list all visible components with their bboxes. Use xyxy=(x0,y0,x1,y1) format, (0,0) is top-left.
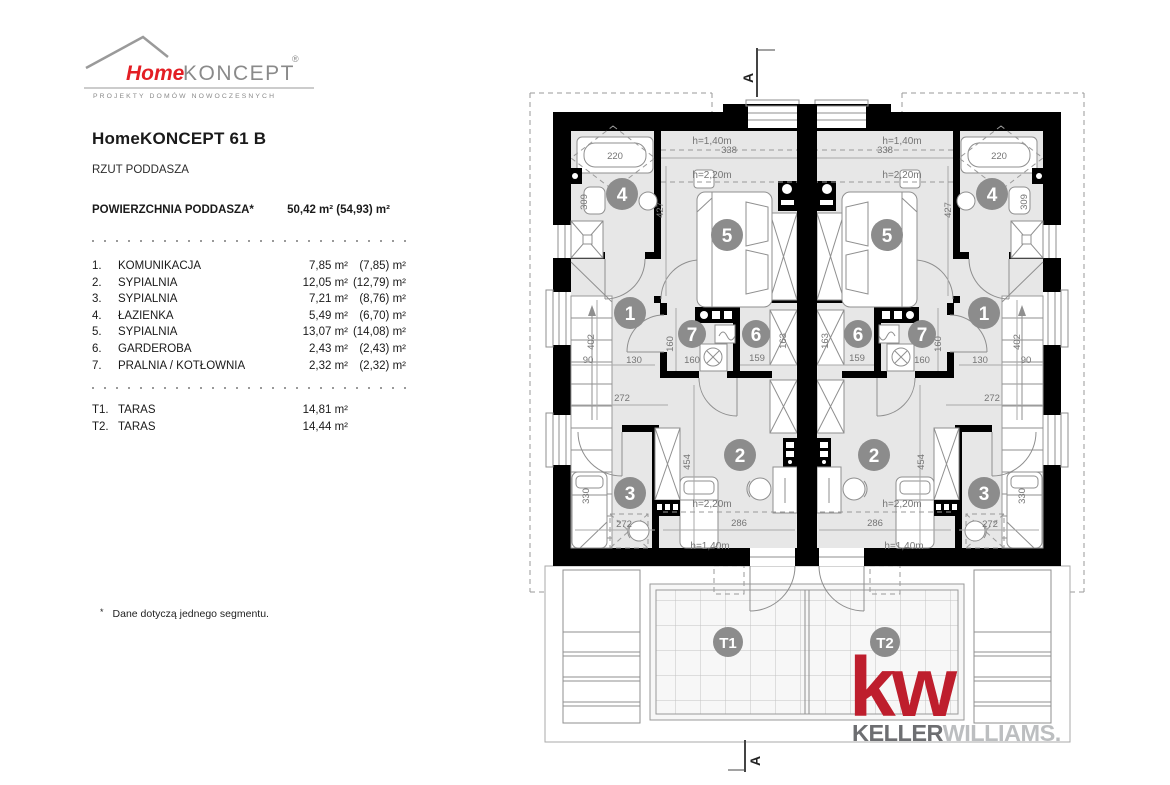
logo-koncept-text: KONCEPT xyxy=(183,62,295,85)
footnote-asterisk: * xyxy=(100,607,104,617)
terrace-area xyxy=(545,566,1070,742)
svg-text:272: 272 xyxy=(984,393,1000,404)
svg-text:1: 1 xyxy=(979,304,990,325)
room-row: 2.SYPIALNIA12,05 m²(12,79) m² xyxy=(92,275,406,292)
svg-text:286: 286 xyxy=(867,518,883,529)
svg-text:309: 309 xyxy=(1019,194,1030,210)
svg-text:A: A xyxy=(747,756,763,766)
svg-text:130: 130 xyxy=(626,355,642,366)
section-marker-top: A xyxy=(740,48,775,97)
svg-text:163: 163 xyxy=(778,333,789,349)
svg-text:402: 402 xyxy=(1012,334,1023,350)
svg-text:402: 402 xyxy=(586,334,597,350)
logo-trademark: ® xyxy=(292,54,299,64)
svg-text:6: 6 xyxy=(853,325,864,346)
svg-text:T1: T1 xyxy=(719,635,737,652)
svg-text:454: 454 xyxy=(682,454,693,470)
logo-home-text: Home xyxy=(126,62,185,85)
logo-tagline: PROJEKTY DOMÓW NOWOCZESNYCH xyxy=(93,91,276,100)
page-title: HomeKONCEPT 61 B xyxy=(92,129,266,149)
svg-text:330: 330 xyxy=(1017,488,1028,504)
svg-text:272: 272 xyxy=(982,519,998,530)
svg-text:6: 6 xyxy=(751,325,762,346)
svg-text:3: 3 xyxy=(625,484,636,505)
svg-text:159: 159 xyxy=(849,353,865,364)
svg-text:1: 1 xyxy=(625,304,636,325)
svg-text:454: 454 xyxy=(916,454,927,470)
svg-text:272: 272 xyxy=(614,393,630,404)
svg-text:130: 130 xyxy=(972,355,988,366)
terrace-row: T2.TARAS14,44 m² xyxy=(92,419,406,436)
section-marker-bottom: A xyxy=(728,740,763,772)
svg-text:159: 159 xyxy=(749,353,765,364)
svg-text:A: A xyxy=(740,73,756,83)
area-summary-label: POWIERZCHNIA PODDASZA* xyxy=(92,204,254,216)
svg-text:309: 309 xyxy=(579,194,590,210)
svg-text:90: 90 xyxy=(1021,355,1032,366)
svg-text:160: 160 xyxy=(684,355,700,366)
svg-text:163: 163 xyxy=(820,333,831,349)
svg-text:4: 4 xyxy=(987,185,998,206)
svg-text:h=2,20m: h=2,20m xyxy=(692,499,731,510)
svg-text:h=2,20m: h=2,20m xyxy=(692,170,731,181)
svg-text:7: 7 xyxy=(917,325,928,346)
area-summary: POWIERZCHNIA PODDASZA* 50,42 m² (54,93) … xyxy=(92,204,406,216)
svg-text:427: 427 xyxy=(943,202,954,218)
svg-text:7: 7 xyxy=(687,325,698,346)
floor-plan: A A 220 309 338 h=1,40m h=2,20m 427 160 … xyxy=(510,30,1110,785)
svg-text:h=1,40m: h=1,40m xyxy=(884,541,923,552)
room-row: 1.KOMUNIKACJA7,85 m²(7,85) m² xyxy=(92,258,406,275)
svg-text:h=1,40m: h=1,40m xyxy=(882,136,921,147)
page-subtitle: RZUT PODDASZA xyxy=(92,164,189,176)
svg-text:220: 220 xyxy=(991,151,1007,162)
svg-text:2: 2 xyxy=(869,446,880,467)
footnote-text: Dane dotyczą jednego segmentu. xyxy=(113,608,269,620)
svg-text:3: 3 xyxy=(979,484,990,505)
room-row: 3.SYPIALNIA7,21 m²(8,76) m² xyxy=(92,291,406,308)
svg-text:h=2,20m: h=2,20m xyxy=(882,170,921,181)
svg-text:160: 160 xyxy=(665,336,676,352)
svg-text:2: 2 xyxy=(735,446,746,467)
svg-text:h=1,40m: h=1,40m xyxy=(690,541,729,552)
room-row: 6.GARDEROBA2,43 m²(2,43) m² xyxy=(92,341,406,358)
svg-text:h=1,40m: h=1,40m xyxy=(692,136,731,147)
dotted-separator xyxy=(92,387,406,389)
svg-text:286: 286 xyxy=(731,518,747,529)
footnote: *Dane dotyczą jednego segmentu. xyxy=(100,607,269,620)
party-wall xyxy=(797,104,817,566)
svg-text:h=2,20m: h=2,20m xyxy=(882,499,921,510)
kw-wordmark: KELLERWILLIAMS. xyxy=(852,720,1061,746)
room-row: 5.SYPIALNIA13,07 m²(14,08) m² xyxy=(92,324,406,341)
dotted-separator xyxy=(92,240,406,242)
terrace-list: T1.TARAS14,81 m² T2.TARAS14,44 m² xyxy=(92,402,406,435)
terrace-row: T1.TARAS14,81 m² xyxy=(92,402,406,419)
svg-text:4: 4 xyxy=(617,185,628,206)
svg-text:427: 427 xyxy=(655,202,666,218)
room-list: 1.KOMUNIKACJA7,85 m²(7,85) m² 2.SYPIALNI… xyxy=(92,258,406,374)
room-row: 4.ŁAZIENKA5,49 m²(6,70) m² xyxy=(92,308,406,325)
homekoncept-logo: Home KONCEPT ® PROJEKTY DOMÓW NOWOCZESNY… xyxy=(80,28,320,106)
svg-text:5: 5 xyxy=(722,226,733,247)
svg-text:90: 90 xyxy=(583,355,594,366)
room-row: 7.PRALNIA / KOTŁOWNIA2,32 m²(2,32) m² xyxy=(92,358,406,375)
svg-text:5: 5 xyxy=(882,226,893,247)
svg-text:330: 330 xyxy=(581,488,592,504)
svg-text:272: 272 xyxy=(616,519,632,530)
svg-text:220: 220 xyxy=(607,151,623,162)
area-summary-value: 50,42 m² (54,93) m² xyxy=(287,204,406,216)
svg-text:160: 160 xyxy=(914,355,930,366)
